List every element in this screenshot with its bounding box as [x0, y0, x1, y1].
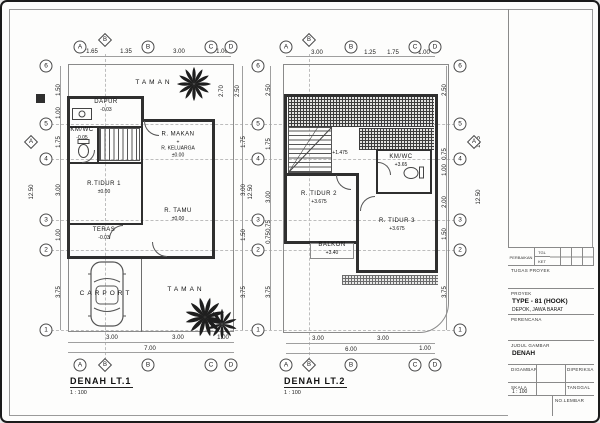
titleblock-sheet-row: NO.LEMBAR [508, 395, 594, 416]
sheet-number-label: NO.LEMBAR [555, 398, 584, 403]
designer-label: PERENCANA [511, 317, 542, 322]
wall-segment [284, 94, 287, 244]
task-label: TUGAS PROYEK [511, 268, 550, 273]
dim-line [286, 343, 435, 344]
wall-segment [141, 119, 143, 225]
dim-line [286, 353, 435, 354]
toilet-icon [402, 165, 424, 181]
revision-column-label: PERBAIKAN [510, 255, 533, 260]
kitchen-counter-icon [72, 108, 92, 120]
plan1-title: DENAH LT.1 [70, 376, 133, 388]
revision-empty-cells [550, 248, 594, 266]
wall-segment [67, 223, 143, 225]
dim-line [68, 342, 234, 343]
dim-line [270, 66, 271, 330]
project-location: DEPOK, JAWA BARAT [512, 307, 563, 313]
project-name: TYPE - 81 (HOOK) [512, 298, 568, 305]
dim-line [68, 352, 234, 353]
plan1-scale: 1 : 100 [70, 390, 133, 396]
drawing-sheet: DENAH LT.1 1 : 100 DENAH LT.2 1 : 100 AB… [0, 0, 600, 423]
canopy-roof-hatch [342, 275, 438, 285]
titleblock-signature-row: DIGAMBAR DIPERIKSA DISETUJUI [508, 364, 594, 382]
titleblock-project-section: PROYEK TYPE - 81 (HOOK) DEPOK, JAWA BARA… [508, 288, 594, 314]
roof-hatch [288, 97, 434, 127]
wall-segment [67, 96, 70, 259]
wall-segment [284, 94, 438, 97]
titleblock-revision-table: PERBAIKAN TGL KET [508, 247, 594, 265]
project-label: PROYEK [511, 291, 532, 296]
titleblock-meta-row: SKALA 1 : 100 TANGGAL KODE [508, 382, 594, 395]
titleblock-designer-section: PERENCANA [508, 314, 594, 340]
wall-segment [67, 96, 144, 99]
wall-segment [356, 270, 438, 273]
stairs-level1 [99, 128, 140, 161]
drawn-label: DIGAMBAR [511, 367, 537, 372]
wall-segment [435, 94, 438, 273]
toilet-icon [76, 139, 91, 159]
plan1-title-block: DENAH LT.1 1 : 100 [70, 371, 133, 396]
wall-segment [67, 162, 143, 164]
plan2-title-block: DENAH LT.2 1 : 100 [284, 371, 347, 396]
plan2-title: DENAH LT.2 [284, 376, 347, 388]
wall-segment [430, 149, 432, 194]
carport-boundary-line [141, 259, 142, 332]
plan1-control-box [36, 94, 45, 103]
wall-segment [376, 192, 432, 194]
titleblock-task-section: TUGAS PROYEK [508, 265, 594, 288]
balcony-outline [310, 243, 354, 259]
dim-line [80, 56, 231, 57]
drawing-title-label: JUDUL GAMBAR [511, 343, 550, 348]
palm-tree-icon [176, 66, 212, 102]
plan2-scale: 1 : 100 [284, 390, 347, 396]
stairs-diagonal-line [288, 127, 332, 173]
roof-hatch [359, 128, 434, 150]
wall-segment [356, 173, 359, 273]
drawing-title: DENAH [512, 350, 535, 357]
titleblock-drawing-title-section: JUDUL GAMBAR DENAH [508, 340, 594, 364]
wall-segment [212, 119, 215, 259]
revision-note-label: KET [538, 259, 546, 264]
dim-line [242, 66, 243, 330]
car-icon [87, 260, 127, 328]
dim-line [60, 66, 61, 330]
revision-date-label: TGL [538, 250, 546, 255]
wall-segment [376, 149, 432, 151]
dim-line [286, 56, 435, 57]
palm-tree-icon [206, 308, 238, 340]
